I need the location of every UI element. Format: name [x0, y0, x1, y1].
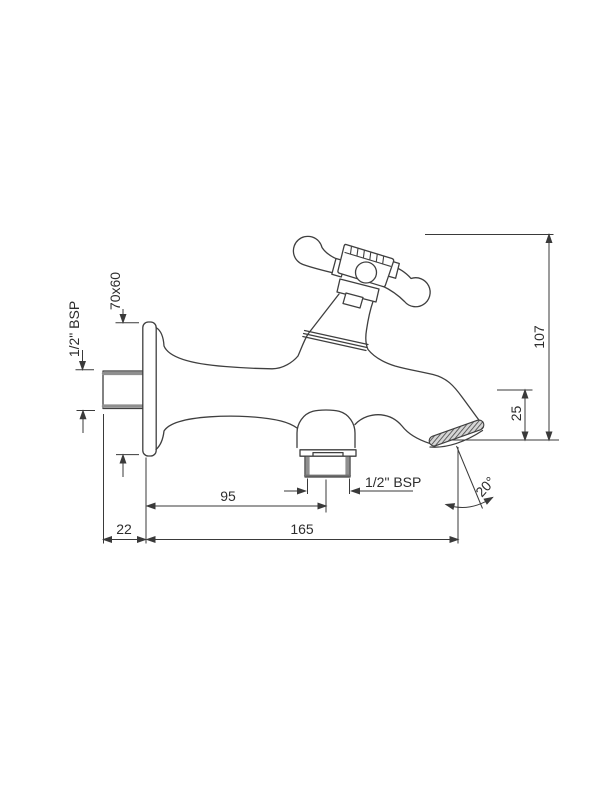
body-bottom-left-outline [156, 416, 297, 449]
aerator-knurl [429, 420, 484, 447]
spout-bottom-outline [355, 415, 430, 444]
body-top-left-outline [156, 294, 339, 369]
dim-inlet-thread [76, 350, 96, 433]
dim-22 [104, 537, 146, 543]
technical-drawing: 1/2" BSP 70x60 107 25 95 165 22 1/2" BSP… [0, 0, 600, 800]
label-wall-to-outlet: 95 [220, 488, 236, 504]
drawing-canvas: 1/2" BSP 70x60 107 25 95 165 22 1/2" BSP… [0, 0, 600, 800]
label-inlet-thread: 1/2" BSP [66, 301, 82, 357]
label-outlet-thread: 1/2" BSP [365, 474, 421, 490]
label-tip-drop: 25 [508, 406, 524, 422]
hub-front-boss [356, 262, 377, 283]
dim-107 [546, 235, 552, 441]
inlet-nipple [103, 371, 145, 409]
outlet-boss [297, 410, 355, 447]
label-nipple-length: 22 [116, 521, 132, 537]
wall-flange [143, 322, 156, 456]
label-overall-height: 107 [531, 325, 547, 349]
dim-165 [147, 537, 458, 543]
label-flange-size: 70x60 [107, 272, 123, 310]
faucet-body [103, 236, 484, 477]
outlet-flange [300, 450, 356, 456]
spout-top-outline [366, 302, 480, 422]
label-wall-to-tip: 165 [290, 521, 314, 537]
label-spout-angle: 20° [472, 473, 498, 499]
dim-95 [147, 503, 326, 509]
bonnet-collar-band [303, 331, 368, 351]
outlet-shank [305, 456, 350, 477]
